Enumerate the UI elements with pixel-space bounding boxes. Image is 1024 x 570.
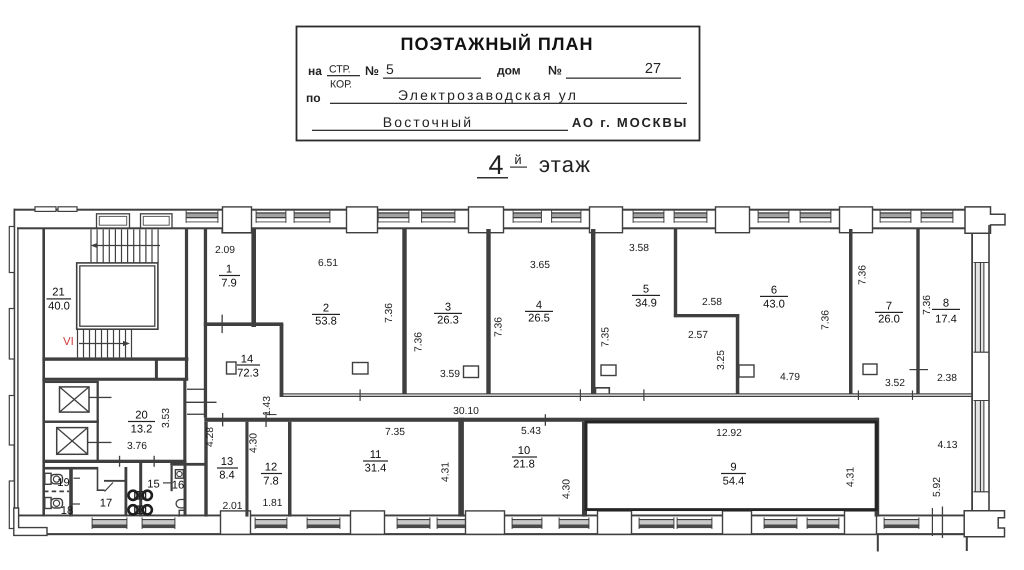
svg-text:12.92: 12.92: [716, 428, 742, 439]
svg-text:26.5: 26.5: [528, 313, 550, 325]
svg-text:й: й: [514, 152, 521, 167]
svg-text:2.58: 2.58: [702, 297, 722, 308]
svg-text:дом: дом: [497, 64, 521, 78]
svg-text:14: 14: [241, 354, 253, 366]
svg-text:№: №: [365, 64, 379, 78]
svg-text:53.8: 53.8: [315, 316, 337, 328]
svg-text:на: на: [308, 64, 322, 78]
svg-text:7.36: 7.36: [494, 317, 505, 337]
svg-text:4.28: 4.28: [205, 427, 216, 447]
svg-text:7.36: 7.36: [922, 295, 933, 315]
svg-text:АО г. МОСКВЫ: АО г. МОСКВЫ: [572, 115, 688, 130]
svg-text:16: 16: [172, 480, 184, 492]
svg-text:№: №: [548, 64, 562, 78]
svg-text:21: 21: [52, 287, 64, 299]
svg-text:2.38: 2.38: [937, 373, 957, 384]
svg-text:4.30: 4.30: [562, 479, 573, 499]
svg-text:6.51: 6.51: [318, 258, 338, 269]
svg-text:7.8: 7.8: [263, 476, 279, 488]
svg-text:3.25: 3.25: [716, 350, 727, 370]
svg-text:12: 12: [265, 462, 277, 474]
svg-text:3.58: 3.58: [629, 243, 649, 254]
svg-text:21.8: 21.8: [513, 459, 535, 471]
svg-text:2.57: 2.57: [688, 330, 708, 341]
svg-text:11: 11: [370, 449, 382, 461]
svg-text:7.35: 7.35: [601, 327, 612, 347]
svg-text:4.31: 4.31: [441, 462, 452, 482]
svg-text:31.4: 31.4: [365, 463, 387, 475]
svg-text:34.9: 34.9: [635, 298, 657, 310]
svg-text:2: 2: [323, 303, 329, 315]
svg-text:5.43: 5.43: [521, 426, 541, 437]
svg-text:4: 4: [488, 150, 503, 180]
svg-text:Электрозаводская ул: Электрозаводская ул: [398, 87, 578, 103]
svg-text:5: 5: [643, 284, 649, 296]
svg-text:40.0: 40.0: [48, 301, 70, 313]
svg-text:26.0: 26.0: [878, 314, 900, 326]
svg-text:4.30: 4.30: [249, 433, 260, 453]
svg-text:3: 3: [445, 302, 451, 314]
svg-text:8: 8: [943, 298, 949, 310]
svg-text:7.9: 7.9: [221, 278, 237, 290]
svg-text:КОР.: КОР.: [330, 79, 352, 91]
svg-text:27: 27: [645, 61, 661, 77]
svg-text:54.4: 54.4: [723, 476, 745, 488]
svg-text:5.92: 5.92: [932, 477, 943, 497]
svg-text:20: 20: [135, 410, 147, 422]
svg-text:13.2: 13.2: [131, 424, 153, 436]
svg-text:13: 13: [221, 456, 233, 468]
svg-text:СТР.: СТР.: [329, 64, 351, 76]
svg-text:72.3: 72.3: [237, 368, 259, 380]
svg-text:8.4: 8.4: [219, 470, 235, 482]
svg-text:1: 1: [226, 264, 232, 276]
svg-text:3.53: 3.53: [161, 408, 172, 428]
svg-text:18: 18: [61, 505, 73, 517]
svg-text:3.65: 3.65: [530, 260, 550, 271]
svg-text:7.35: 7.35: [385, 427, 405, 438]
svg-text:4.31: 4.31: [846, 467, 857, 487]
svg-text:7.36: 7.36: [384, 303, 395, 323]
svg-text:Восточный: Восточный: [383, 114, 474, 130]
svg-text:1.81: 1.81: [262, 498, 282, 509]
svg-text:7.36: 7.36: [414, 332, 425, 352]
svg-text:43.0: 43.0: [763, 299, 785, 311]
svg-text:2.09: 2.09: [215, 245, 235, 256]
svg-text:1.43: 1.43: [262, 396, 273, 416]
svg-text:5: 5: [386, 61, 394, 77]
svg-text:17.4: 17.4: [935, 314, 957, 326]
svg-text:7: 7: [886, 301, 892, 313]
svg-text:ПОЭТАЖНЫЙ ПЛАН: ПОЭТАЖНЫЙ ПЛАН: [401, 33, 594, 54]
svg-text:4.13: 4.13: [937, 440, 957, 451]
svg-text:3.52: 3.52: [885, 378, 905, 389]
svg-text:7.36: 7.36: [821, 310, 832, 330]
svg-text:4: 4: [536, 300, 542, 312]
svg-text:4.79: 4.79: [780, 372, 800, 383]
svg-text:3.76: 3.76: [127, 441, 147, 452]
svg-text:17: 17: [100, 498, 112, 510]
svg-text:9: 9: [730, 462, 736, 474]
svg-text:7.36: 7.36: [858, 265, 869, 285]
svg-text:VI: VI: [63, 336, 74, 348]
svg-text:26.3: 26.3: [437, 315, 459, 327]
svg-text:3.59: 3.59: [440, 369, 460, 380]
svg-text:этаж: этаж: [539, 152, 591, 177]
svg-text:6: 6: [771, 285, 777, 297]
svg-text:19: 19: [57, 477, 69, 489]
svg-text:15: 15: [147, 479, 159, 491]
svg-text:10: 10: [518, 445, 530, 457]
svg-text:по: по: [306, 91, 321, 105]
svg-text:2.01: 2.01: [222, 501, 242, 512]
svg-text:30.10: 30.10: [453, 406, 479, 417]
